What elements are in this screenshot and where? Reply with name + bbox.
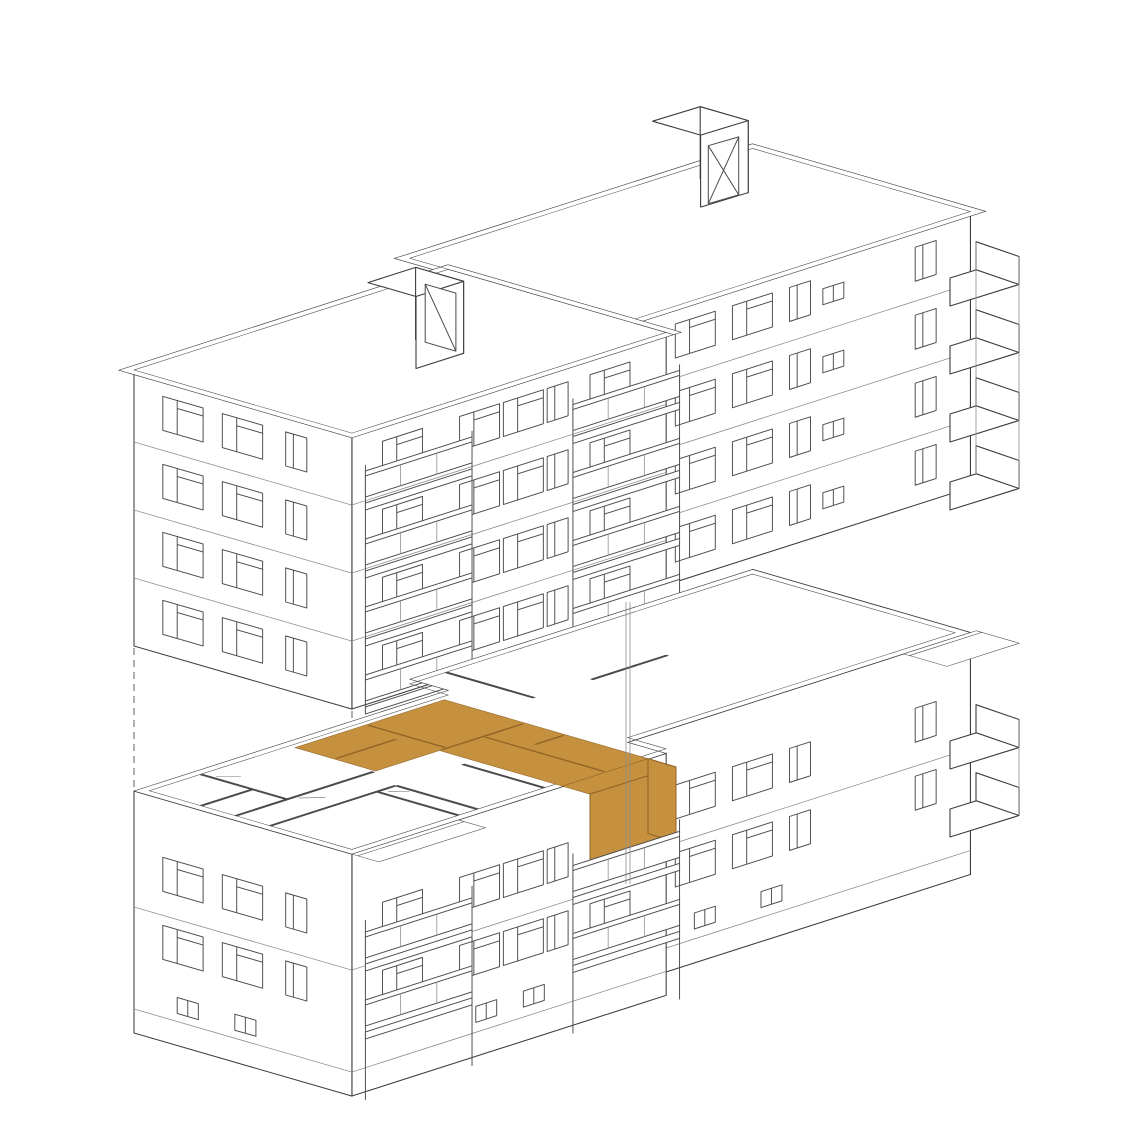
diagram-canvas <box>0 0 1133 1133</box>
building-axonometric-diagram <box>0 0 1133 1133</box>
